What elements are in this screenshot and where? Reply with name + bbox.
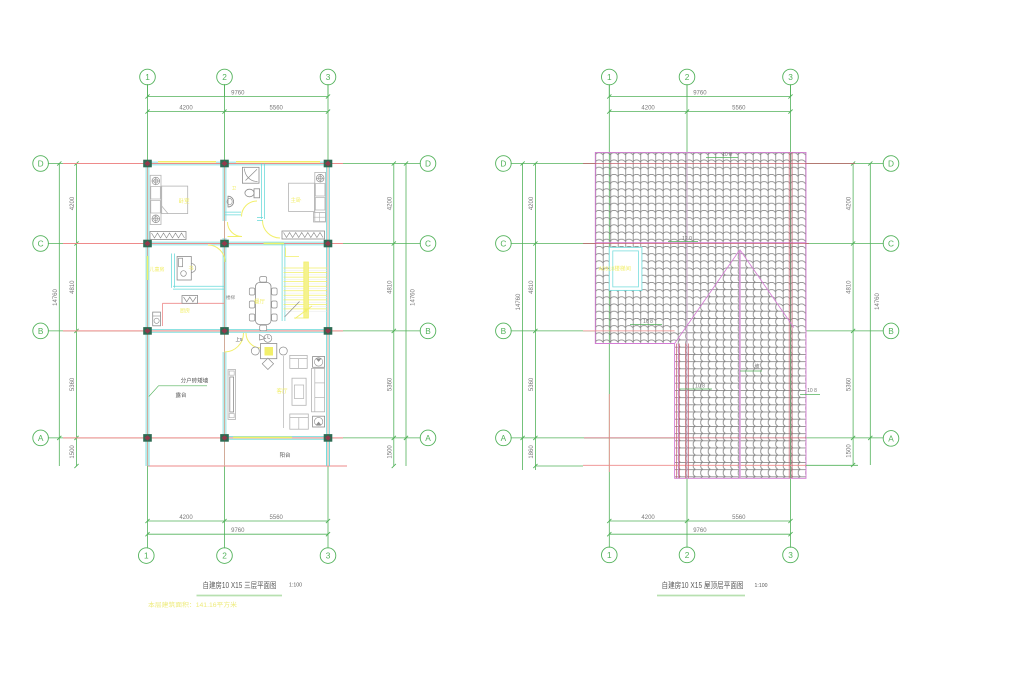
svg-text:上5: 上5: [235, 336, 242, 342]
svg-text:4200: 4200: [847, 196, 853, 210]
svg-text:1500: 1500: [70, 445, 76, 459]
svg-text:C: C: [425, 238, 431, 248]
svg-text:4200: 4200: [529, 196, 535, 210]
svg-text:14760: 14760: [875, 292, 881, 309]
svg-text:C: C: [500, 238, 506, 248]
svg-text:1: 1: [607, 72, 612, 82]
svg-text:1500: 1500: [387, 445, 393, 459]
svg-text:分户砖矮墙: 分户砖矮墙: [181, 377, 209, 385]
svg-text:14760: 14760: [516, 293, 522, 310]
svg-text:主卧: 主卧: [290, 196, 302, 204]
svg-text:楼梯: 楼梯: [226, 294, 235, 301]
svg-text:D: D: [38, 158, 44, 168]
svg-text:4810: 4810: [387, 280, 393, 294]
svg-text:4200: 4200: [70, 196, 76, 210]
svg-text:5360: 5360: [387, 377, 393, 391]
svg-text:4200: 4200: [641, 106, 655, 112]
svg-text:1: 1: [144, 551, 149, 561]
svg-text:1500: 1500: [847, 444, 853, 458]
svg-text:1: 1: [145, 72, 150, 82]
svg-text:卧室: 卧室: [178, 197, 190, 205]
svg-text:1:100: 1:100: [289, 583, 302, 589]
svg-text:14760: 14760: [53, 288, 59, 305]
svg-text:4200: 4200: [179, 106, 193, 112]
svg-text:5560: 5560: [270, 515, 284, 521]
svg-text:书: 书: [188, 265, 193, 272]
svg-text:儿童房: 儿童房: [149, 266, 164, 273]
svg-text:自建房10 X15 屋顶层平面图: 自建房10 X15 屋顶层平面图: [662, 580, 744, 590]
svg-text:4810: 4810: [70, 280, 76, 294]
svg-text:4810: 4810: [847, 280, 853, 294]
svg-text:16 8: 16 8: [643, 319, 653, 325]
svg-text:10 8: 10 8: [807, 388, 817, 394]
svg-text:客厅: 客厅: [276, 387, 288, 395]
svg-text:厨房: 厨房: [180, 308, 190, 315]
svg-text:A: A: [501, 433, 507, 443]
svg-text:5560: 5560: [270, 106, 284, 112]
svg-text:4810: 4810: [529, 280, 535, 294]
svg-text:D: D: [425, 158, 431, 168]
svg-text:1: 1: [607, 550, 612, 560]
svg-text:B: B: [38, 326, 44, 336]
svg-text:10 8: 10 8: [722, 152, 732, 158]
svg-text:C: C: [888, 238, 894, 248]
svg-text:14760: 14760: [411, 288, 417, 305]
svg-text:9760: 9760: [693, 528, 707, 534]
svg-text:坡: 坡: [754, 363, 759, 370]
svg-text:4200: 4200: [179, 515, 193, 521]
svg-text:1:100: 1:100: [755, 583, 768, 589]
svg-text:9760: 9760: [231, 528, 245, 534]
svg-text:12 0: 12 0: [682, 236, 692, 242]
svg-text:2: 2: [222, 72, 227, 82]
svg-text:B: B: [501, 326, 507, 336]
svg-text:A: A: [888, 433, 894, 443]
svg-text:5360: 5360: [847, 377, 853, 391]
svg-text:5360: 5360: [70, 377, 76, 391]
svg-text:4200: 4200: [387, 196, 393, 210]
svg-text:9760: 9760: [693, 91, 707, 97]
svg-text:阳台: 阳台: [279, 451, 291, 459]
svg-text:3: 3: [788, 72, 793, 82]
svg-text:露台: 露台: [175, 391, 187, 399]
svg-text:B: B: [425, 326, 431, 336]
svg-text:4200: 4200: [641, 515, 655, 521]
svg-text:3: 3: [326, 72, 331, 82]
svg-text:餐厅: 餐厅: [254, 298, 266, 306]
svg-text:B: B: [888, 326, 894, 336]
svg-text:D: D: [888, 158, 894, 168]
svg-text:C: C: [38, 238, 44, 248]
svg-text:3: 3: [326, 551, 331, 561]
svg-text:A: A: [425, 433, 431, 443]
svg-text:2: 2: [222, 551, 227, 561]
svg-text:卫: 卫: [232, 186, 237, 191]
svg-text:自建房10 X15 三层平面图: 自建房10 X15 三层平面图: [203, 580, 277, 590]
svg-text:2: 2: [685, 72, 690, 82]
svg-text:D: D: [500, 158, 506, 168]
svg-text:10 8: 10 8: [695, 384, 705, 390]
svg-text:5360: 5360: [529, 377, 535, 391]
svg-text:厨: 厨: [266, 349, 271, 355]
svg-text:5560: 5560: [732, 515, 746, 521]
svg-text:A0918楼梯间: A0918楼梯间: [599, 265, 631, 273]
svg-text:2: 2: [685, 550, 690, 560]
svg-text:本层建筑面积：141.16平方米: 本层建筑面积：141.16平方米: [148, 601, 237, 609]
svg-text:3: 3: [788, 550, 793, 560]
svg-text:A: A: [38, 433, 44, 443]
svg-text:1860: 1860: [529, 445, 535, 459]
svg-text:9760: 9760: [231, 91, 245, 97]
svg-text:5560: 5560: [732, 106, 746, 112]
